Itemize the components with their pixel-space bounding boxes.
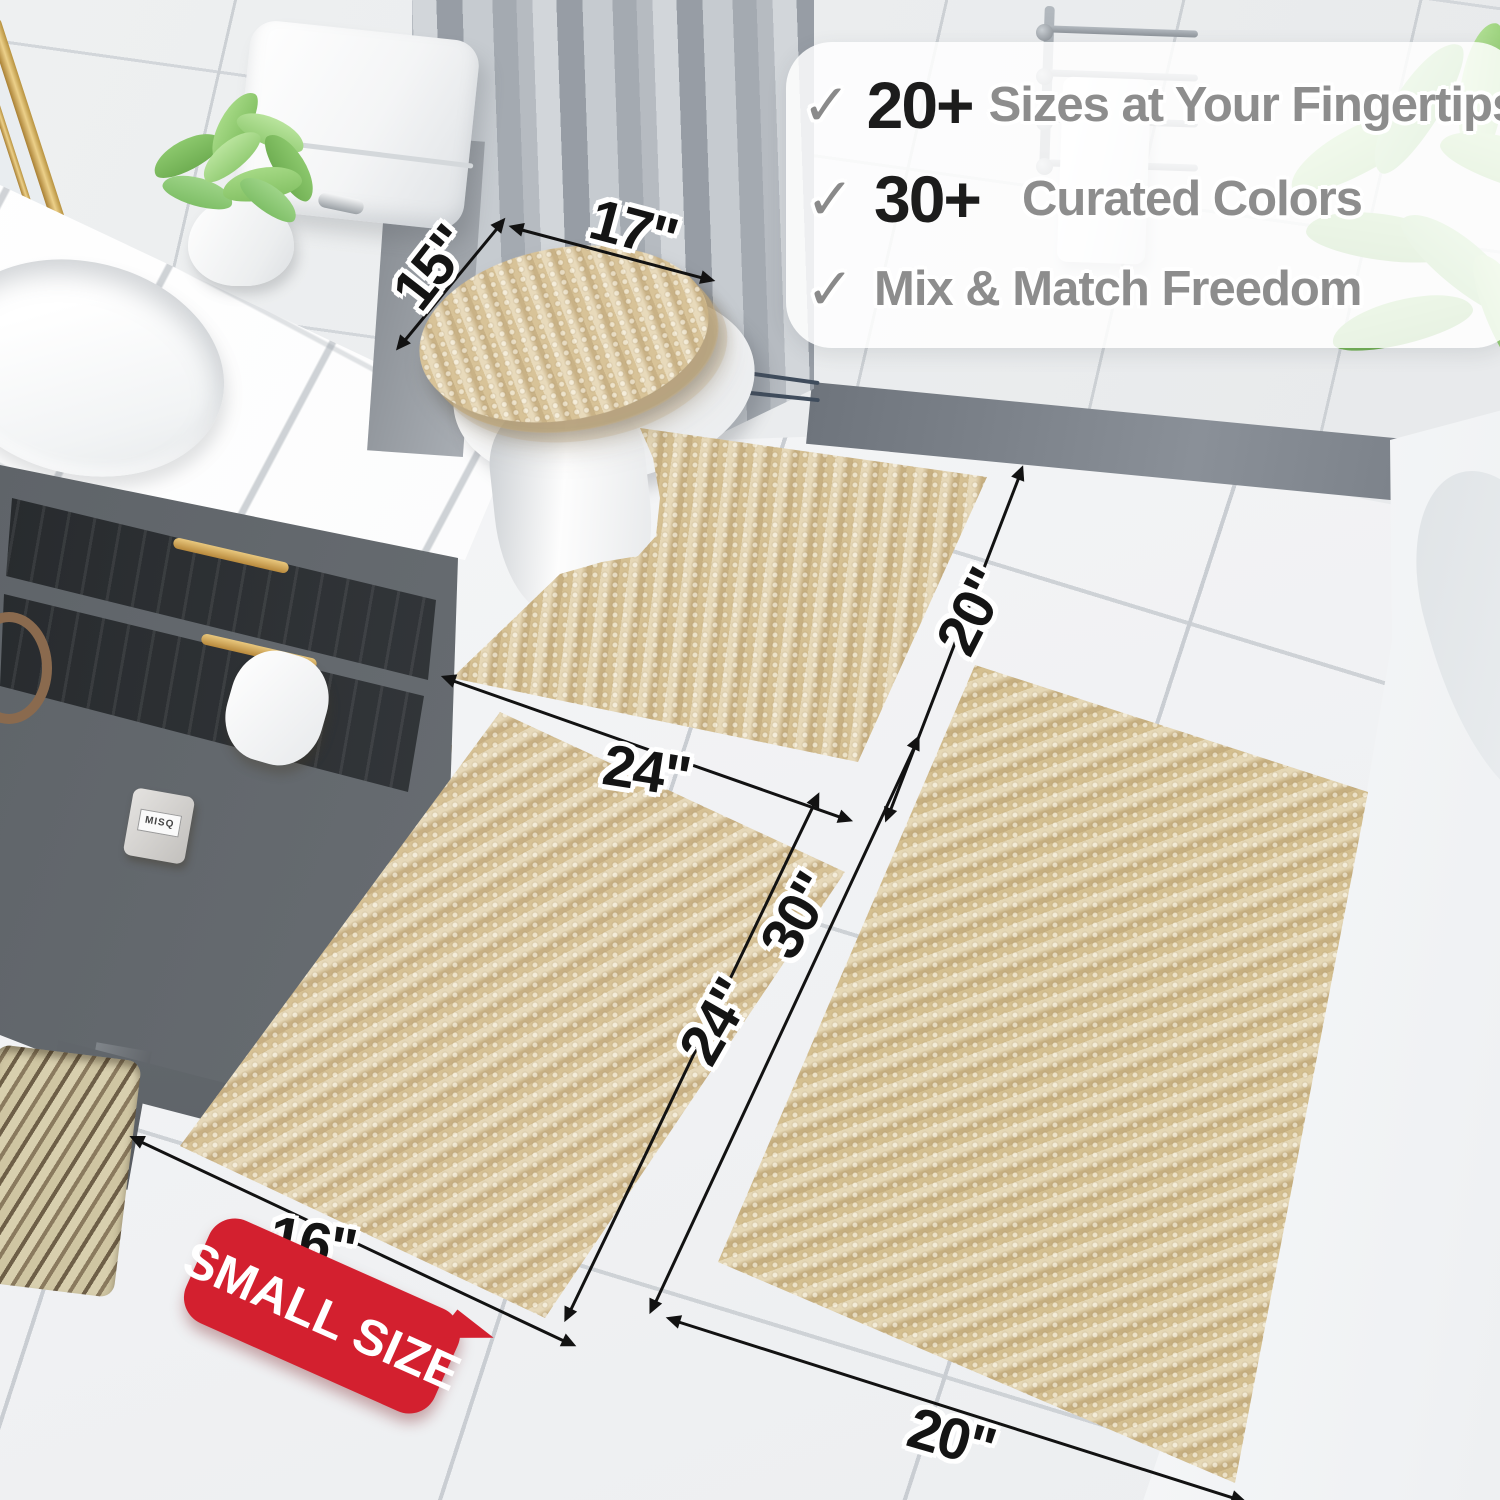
banner-label: Curated Colors (1022, 171, 1362, 227)
banner-row: ✓ 20+ Sizes at Your Fingertips (802, 67, 1500, 143)
dim-label-contour-width: 24" (598, 731, 693, 811)
banner-row: ✓ 30+ Curated Colors (802, 161, 1500, 237)
check-icon: ✓ (802, 255, 858, 323)
storage-basket (0, 1044, 142, 1298)
banner-row: ✓ Mix & Match Freedom (802, 255, 1500, 323)
perfume-bottle: MISQ (123, 787, 196, 865)
feature-banner: ✓ 20+ Sizes at Your Fingertips ✓ 30+ Cur… (786, 42, 1500, 348)
banner-number: 20+ (867, 67, 973, 143)
rack-knob (1036, 24, 1053, 41)
check-icon: ✓ (802, 165, 858, 233)
product-photo-bathroom-rug-set: MISQ ✓ 20+ Sizes at Your Fingertips ✓ 30… (0, 0, 1500, 1500)
perfume-label: MISQ (137, 809, 182, 838)
banner-number: 30+ (874, 161, 1006, 237)
check-icon: ✓ (802, 71, 851, 139)
banner-label: Mix & Match Freedom (874, 261, 1361, 317)
dim-label-large-width: 20" (900, 1394, 1001, 1482)
banner-label: Sizes at Your Fingertips (989, 77, 1500, 133)
